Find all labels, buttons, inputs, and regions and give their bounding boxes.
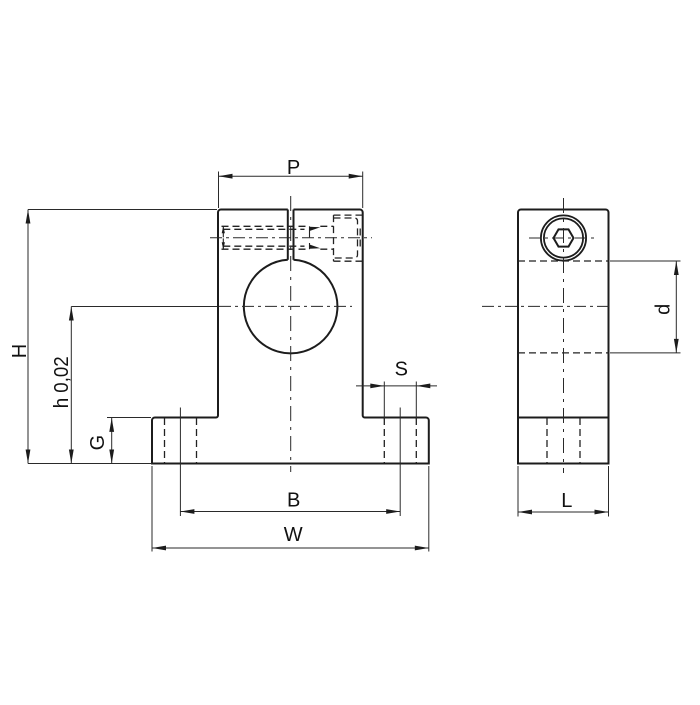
svg-text:S: S [395,358,408,380]
svg-text:h 0,02: h 0,02 [51,356,73,408]
svg-text:d: d [653,304,675,315]
svg-text:B: B [287,490,300,512]
svg-text:W: W [284,524,303,546]
svg-text:G: G [87,435,109,451]
svg-text:P: P [287,157,300,179]
svg-text:L: L [561,490,572,512]
svg-text:H: H [9,344,31,358]
